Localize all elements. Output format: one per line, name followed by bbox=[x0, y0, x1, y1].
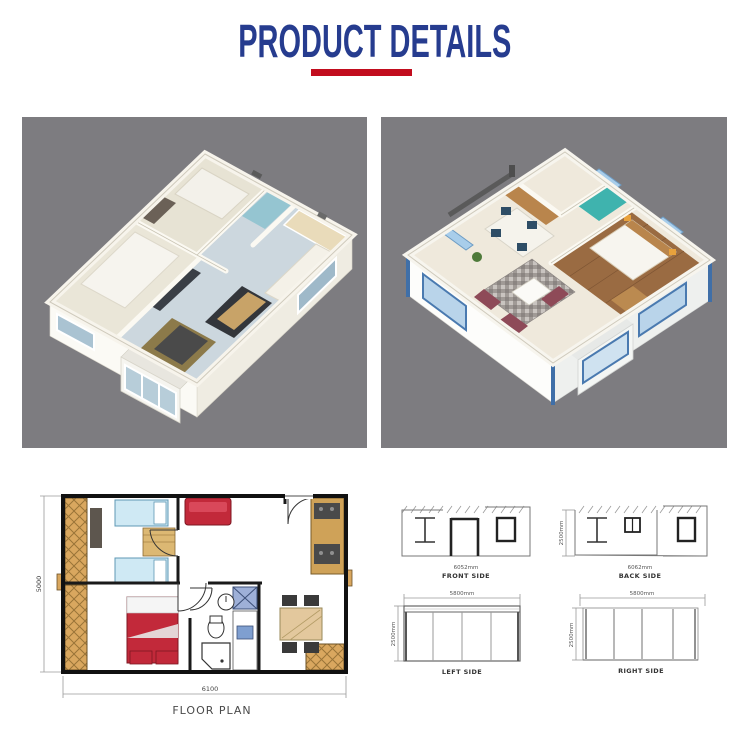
plan-width-dimension: 6100 bbox=[202, 685, 219, 693]
front-width-dim: 6052mm bbox=[454, 565, 479, 571]
front-side-label: FRONT SIDE bbox=[442, 572, 490, 580]
plan-depth-dimension: 5000 bbox=[35, 576, 43, 593]
left-width-dim: 5800mm bbox=[450, 591, 475, 597]
elevations-svg: 6052mm FRONT SIDE 2500mm 6062mm BACK SID… bbox=[390, 478, 730, 723]
right-width-dim: 5800mm bbox=[630, 591, 655, 597]
back-side-label: BACK SIDE bbox=[619, 572, 662, 580]
back-width-dim: 6062mm bbox=[628, 565, 653, 571]
floor-plan-caption: FLOOR PLAN bbox=[172, 704, 251, 717]
left-side-label: LEFT SIDE bbox=[442, 668, 482, 676]
page-header: PRODUCT DETAILS bbox=[0, 18, 750, 76]
back-side-drawing: 2500mm 6062mm BACK SIDE bbox=[559, 506, 707, 580]
isometric-house-drawing-2 bbox=[381, 117, 727, 448]
right-height-dim: 2500mm bbox=[569, 623, 575, 648]
left-side-drawing: 5800mm 2500mm LEFT SIDE bbox=[391, 591, 520, 676]
page-title: PRODUCT DETAILS bbox=[238, 18, 511, 64]
isometric-house-drawing-1 bbox=[22, 117, 367, 448]
elevation-drawings: 6052mm FRONT SIDE 2500mm 6062mm BACK SID… bbox=[390, 478, 730, 723]
floor-plan-svg: 5000 6100 FLOOR PLAN bbox=[30, 478, 380, 746]
front-side-drawing: 6052mm FRONT SIDE bbox=[402, 506, 530, 580]
isometric-render-image-2 bbox=[381, 117, 727, 448]
title-underline-bar bbox=[311, 69, 412, 76]
right-side-drawing: 5800mm 2500mm RIGHT SIDE bbox=[569, 591, 705, 675]
back-height-dim: 2500mm bbox=[559, 521, 565, 546]
isometric-render-image-1 bbox=[22, 117, 367, 448]
left-height-dim: 2500mm bbox=[391, 622, 397, 647]
floor-plan-drawing: 5000 6100 FLOOR PLAN bbox=[30, 478, 380, 746]
right-side-label: RIGHT SIDE bbox=[618, 667, 664, 675]
